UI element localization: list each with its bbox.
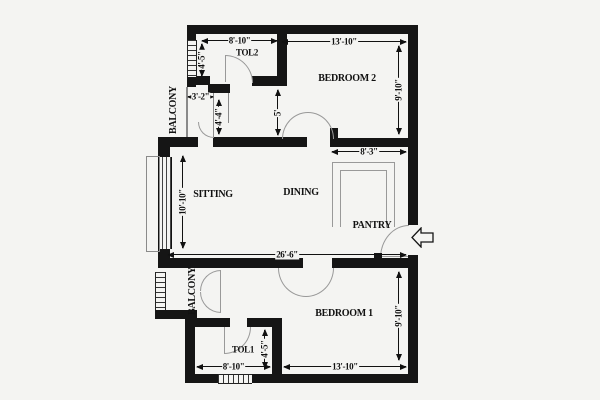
dim-label: 13'-10"	[330, 38, 358, 47]
wall-tol1-top-right	[247, 318, 282, 327]
dim-label: 5'	[274, 108, 283, 116]
wall-sitting-bottom	[158, 258, 303, 268]
dim-label: 8'-10"	[222, 363, 246, 372]
room-label-bedroom1: BEDROOM 1	[315, 309, 373, 319]
room-label-tol1: TOL1	[232, 346, 254, 355]
dim-balcony-height: 4'-4"	[218, 100, 219, 134]
pantry-counter-inner	[340, 170, 387, 227]
dim-label: 4'-5"	[198, 50, 207, 70]
wall-pantry-bottom	[332, 258, 408, 268]
door-arc-tol2	[225, 55, 253, 83]
dim-label: 4'-4"	[215, 107, 224, 127]
wall-right-upper	[408, 25, 418, 225]
dim-bedroom1-width: 13'-10"	[284, 366, 406, 367]
floor-plan: 8'-10" 13'-10" 4'-5" 9'-10" 3'-2" 4'-4" …	[0, 0, 600, 400]
dim-label: 3'-2"	[191, 93, 211, 102]
wall-balcony-step	[208, 84, 230, 93]
window-tol2	[187, 40, 197, 77]
entrance-arrow-icon	[411, 227, 434, 248]
door-arc-french-bottom	[200, 292, 221, 313]
door-arc-balcony-top	[198, 122, 214, 138]
window-sitting-sill	[146, 156, 160, 252]
door-arc-french-top	[200, 270, 221, 291]
wall-tol2-bottom-left	[187, 76, 210, 85]
dim-label: 8'-10"	[228, 37, 252, 46]
dim-label: 13'-10"	[331, 363, 359, 372]
dim-label: 10'-10"	[179, 188, 188, 216]
door-leaf-tol1	[224, 327, 225, 353]
dim-total-width: 26'-6"	[168, 254, 406, 255]
dim-bedroom2-width: 13'-10"	[282, 41, 406, 42]
window-balcony-bottom	[155, 272, 166, 310]
dim-tol2-width: 8'-10"	[202, 40, 277, 41]
door-arc-bedroom2	[282, 112, 334, 139]
dim-label: 4'-5"	[261, 339, 270, 359]
dim-tol2-height: 4'-5"	[201, 44, 202, 76]
wall-sitting-left-top	[158, 137, 170, 158]
room-label-balcony-bottom: BALCONY	[188, 267, 198, 315]
window-tol1	[218, 374, 252, 384]
passage-edge	[228, 93, 229, 123]
wall-top	[187, 25, 418, 34]
room-label-balcony-top: BALCONY	[169, 86, 179, 134]
door-hinge-french	[220, 270, 221, 312]
door-arc-bedroom1	[278, 268, 334, 297]
wall-right-lower	[408, 255, 418, 383]
door-leaf-tol2	[225, 55, 226, 82]
window-sitting	[158, 157, 172, 249]
wall-tol1-left	[185, 318, 195, 383]
dim-bedroom2-height: 9'-10"	[398, 46, 399, 134]
room-label-dining: DINING	[283, 188, 318, 198]
room-label-tol2: TOL2	[236, 49, 258, 58]
dim-sitting-height: 10'-10"	[182, 156, 183, 248]
room-label-bedroom2: BEDROOM 2	[318, 74, 376, 84]
dim-tol1-width: 8'-10"	[197, 366, 270, 367]
room-label-pantry: PANTRY	[353, 221, 392, 231]
dim-hall-height: 5'	[277, 90, 278, 135]
dim-pantry-width: 8'-3"	[332, 151, 406, 152]
dim-balcony-width: 3'-2"	[188, 96, 213, 97]
room-label-sitting: SITTING	[193, 190, 233, 200]
dim-label: 8'-3"	[359, 148, 379, 157]
wall-tol1-top-left	[185, 318, 230, 327]
wall-tol1-right	[272, 327, 282, 383]
dim-label: 9'-10"	[395, 304, 404, 328]
dim-bedroom1-height: 9'-10"	[398, 272, 399, 360]
dim-tol1-height: 4'-5"	[264, 330, 265, 368]
dim-label: 26'-6"	[275, 251, 299, 260]
dim-label: 9'-10"	[395, 78, 404, 102]
